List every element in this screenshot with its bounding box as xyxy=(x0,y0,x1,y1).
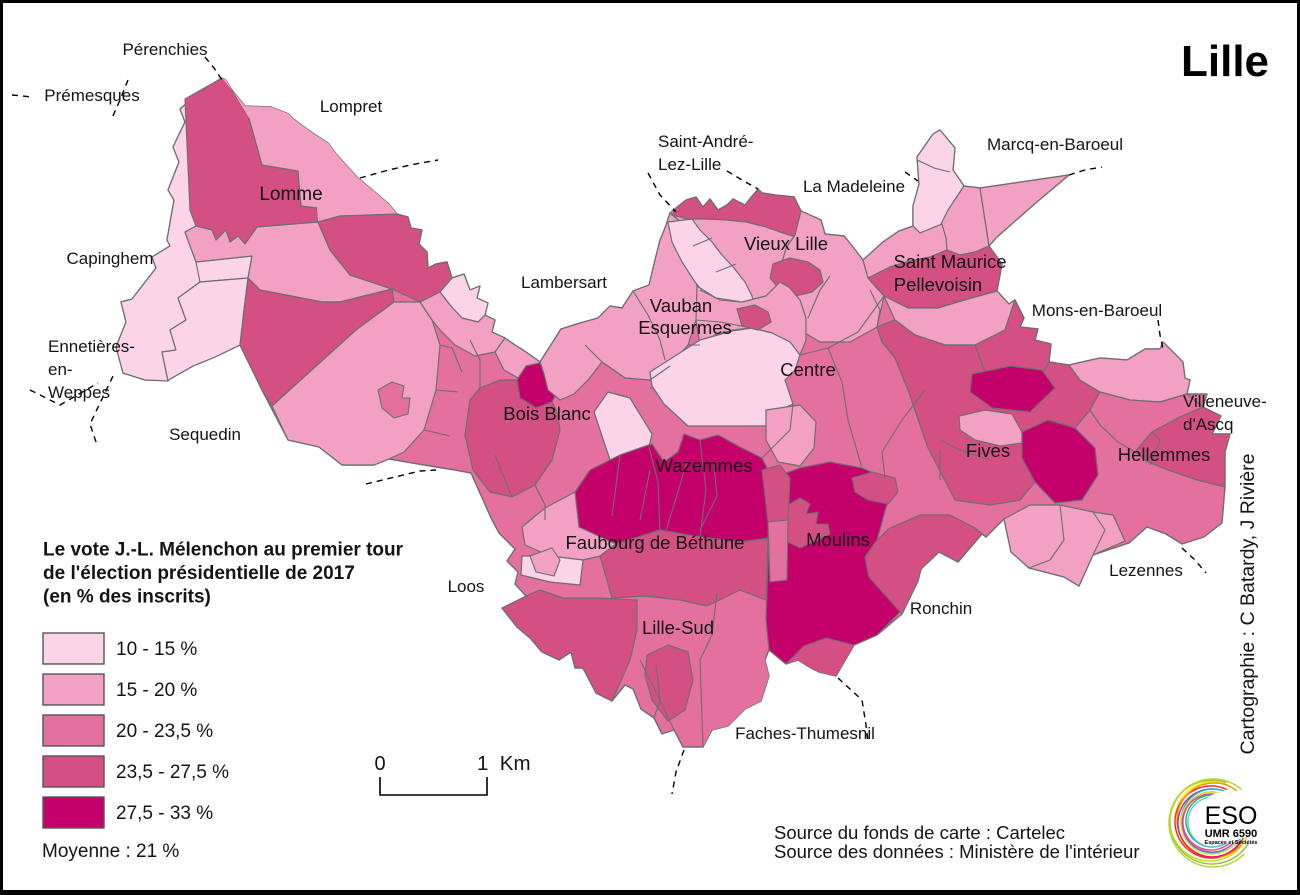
svg-text:15 - 20 %: 15 - 20 % xyxy=(116,680,197,701)
svg-text:Bois Blanc: Bois Blanc xyxy=(503,403,590,424)
svg-text:0: 0 xyxy=(374,753,385,775)
svg-text:Sequedin: Sequedin xyxy=(169,425,241,444)
svg-text:de l'élection présidentielle d: de l'élection présidentielle de 2017 xyxy=(43,563,355,584)
svg-text:Mons-en-Baroeul: Mons-en-Baroeul xyxy=(1032,301,1162,320)
svg-text:Centre: Centre xyxy=(780,359,836,380)
svg-text:Faubourg de Béthune: Faubourg de Béthune xyxy=(566,532,745,553)
svg-text:23,5 - 27,5 %: 23,5 - 27,5 % xyxy=(116,762,229,783)
svg-text:Fives: Fives xyxy=(966,440,1010,461)
svg-text:Capinghem: Capinghem xyxy=(67,249,154,268)
svg-text:ESO: ESO xyxy=(1205,802,1258,830)
svg-text:Lambersart: Lambersart xyxy=(521,273,607,292)
svg-text:(en % des inscrits): (en % des inscrits) xyxy=(43,587,211,608)
svg-text:Marcq-en-Baroeul: Marcq-en-Baroeul xyxy=(987,135,1123,154)
svg-text:d'Ascq: d'Ascq xyxy=(1183,415,1234,434)
svg-text:Lille-Sud: Lille-Sud xyxy=(642,617,714,638)
svg-text:Lomme: Lomme xyxy=(259,184,322,205)
svg-text:Ronchin: Ronchin xyxy=(910,599,972,618)
svg-text:Moulins: Moulins xyxy=(806,529,870,550)
svg-text:UMR 6590: UMR 6590 xyxy=(1205,828,1258,840)
svg-text:Source du fonds de carte : Car: Source du fonds de carte : Cartelec xyxy=(774,822,1065,843)
svg-text:27,5 - 33 %: 27,5 - 33 % xyxy=(116,803,213,824)
svg-text:Weppes: Weppes xyxy=(48,383,110,402)
svg-text:Wazemmes: Wazemmes xyxy=(656,455,753,476)
svg-text:10 - 15 %: 10 - 15 % xyxy=(116,639,197,660)
svg-text:Prémesques: Prémesques xyxy=(44,86,139,105)
svg-text:Vieux Lille: Vieux Lille xyxy=(744,233,828,254)
svg-text:Saint-André-: Saint-André- xyxy=(658,132,753,151)
svg-text:Esquermes: Esquermes xyxy=(638,317,732,338)
svg-text:Pellevoisin: Pellevoisin xyxy=(894,274,982,295)
svg-text:Le vote J.-L. Mélenchon au pre: Le vote J.-L. Mélenchon au premier tour xyxy=(43,540,404,561)
svg-text:Saint Maurice: Saint Maurice xyxy=(893,251,1006,272)
svg-text:Source des données : Ministère: Source des données : Ministère de l'inté… xyxy=(774,841,1140,862)
svg-text:La Madeleine: La Madeleine xyxy=(803,177,905,196)
svg-text:Hellemmes: Hellemmes xyxy=(1118,444,1211,465)
svg-text:Ennetières-: Ennetières- xyxy=(48,337,135,356)
svg-text:Faches-Thumesnil: Faches-Thumesnil xyxy=(735,724,875,743)
svg-text:Espaces et Sociétés: Espaces et Sociétés xyxy=(1205,840,1258,846)
svg-text:Lille: Lille xyxy=(1181,37,1269,86)
svg-text:Lompret: Lompret xyxy=(320,97,383,116)
svg-text:1 Km: 1 Km xyxy=(477,752,531,775)
svg-text:en-: en- xyxy=(48,360,73,379)
svg-text:Vauban: Vauban xyxy=(650,295,712,316)
svg-text:Loos: Loos xyxy=(448,577,485,596)
svg-text:Lez-Lille: Lez-Lille xyxy=(658,155,721,174)
svg-text:Moyenne : 21 %: Moyenne : 21 % xyxy=(42,841,179,862)
svg-text:Pérenchies: Pérenchies xyxy=(122,40,207,59)
svg-text:20 - 23,5 %: 20 - 23,5 % xyxy=(116,721,213,742)
svg-text:Villeneuve-: Villeneuve- xyxy=(1183,392,1267,411)
svg-text:Lezennes: Lezennes xyxy=(1109,561,1183,580)
svg-text:Cartographie : C Batardy, J Ri: Cartographie : C Batardy, J Rivière xyxy=(1237,454,1259,755)
